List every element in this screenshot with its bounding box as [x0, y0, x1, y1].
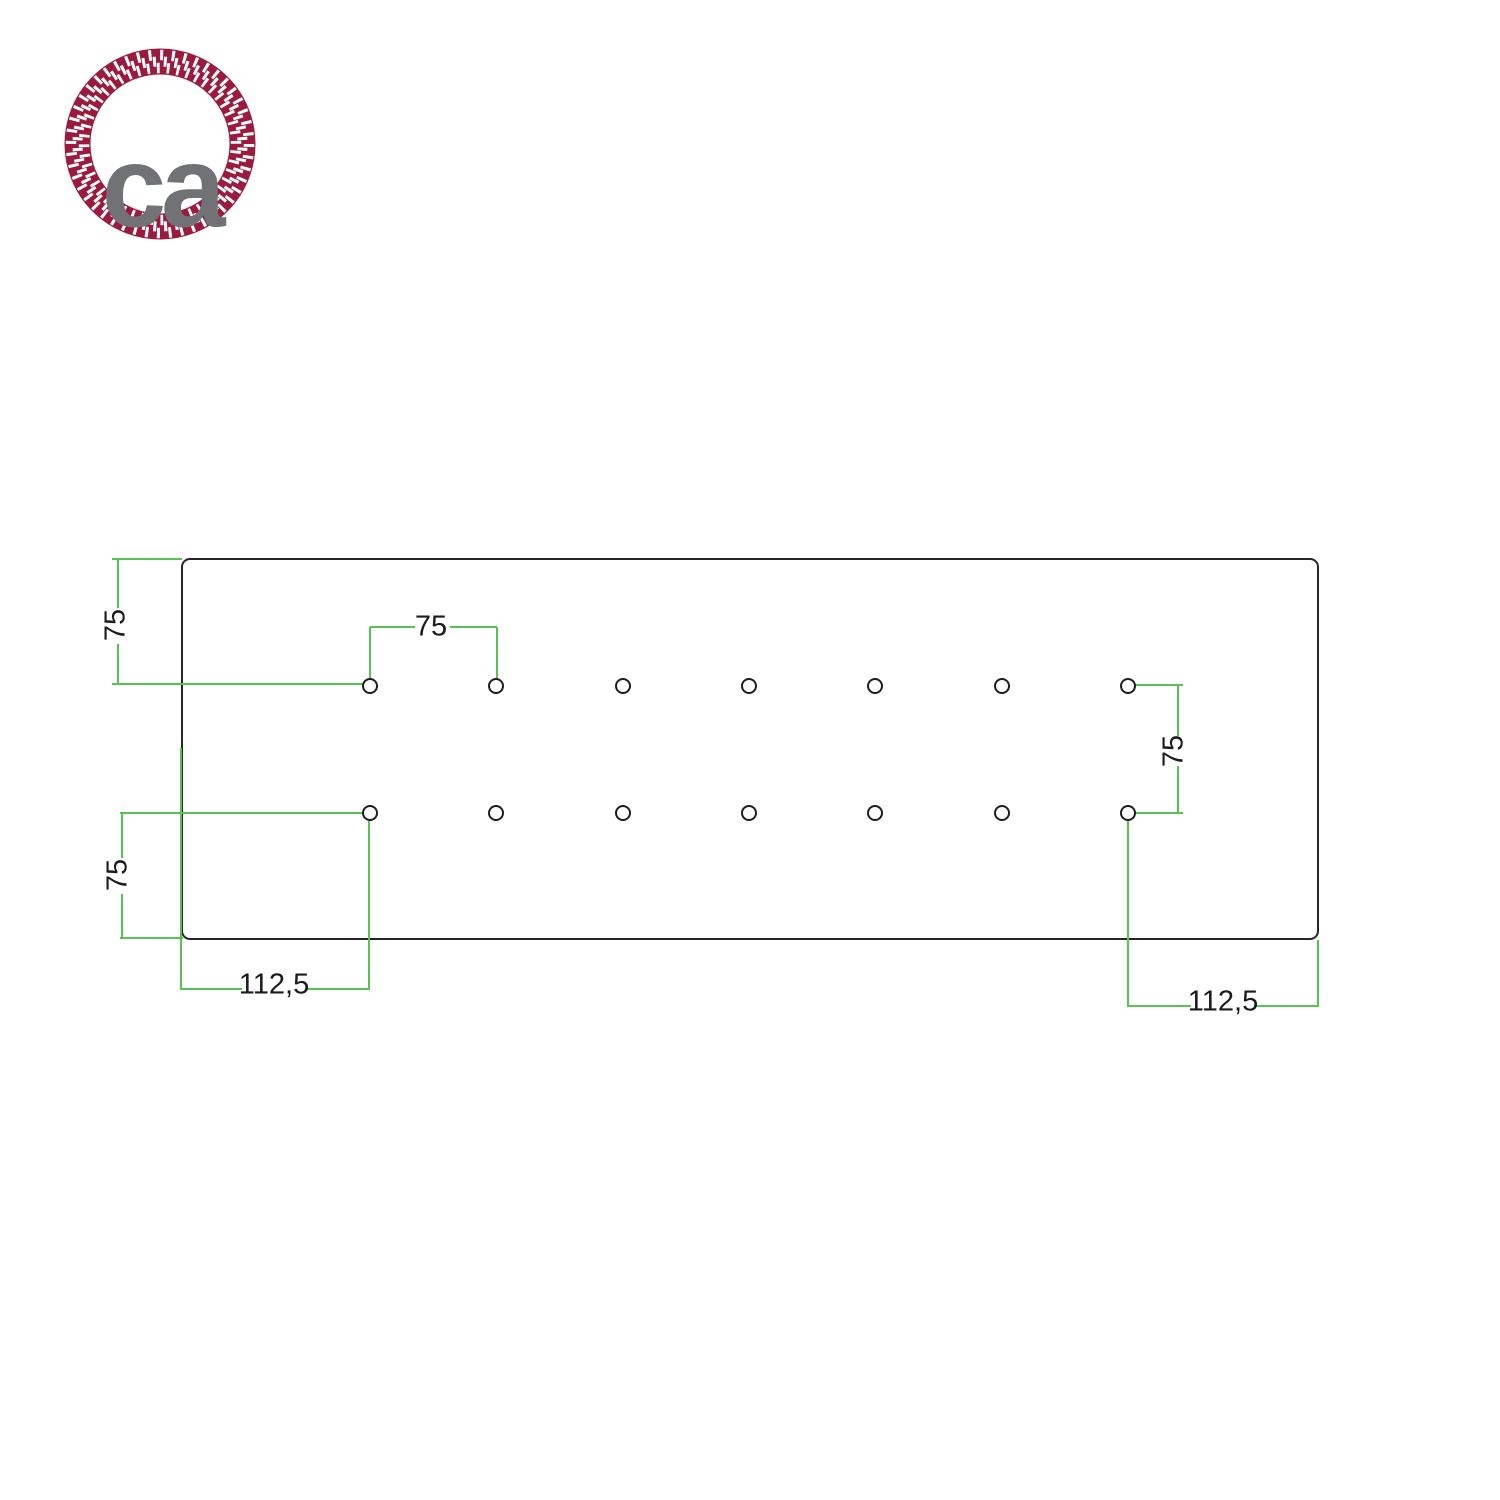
- dimension-line: [121, 894, 123, 939]
- dim-label-hole-spacing-75: 75: [415, 613, 447, 642]
- extension-line: [120, 812, 370, 814]
- mounting-hole: [741, 805, 757, 821]
- mounting-hole: [362, 805, 378, 821]
- dim-label-top-left-75: 75: [102, 609, 131, 641]
- plate-outline: [181, 558, 1319, 940]
- dim-label-bottom-left-75: 75: [104, 859, 133, 891]
- dim-label-offset-left-112-5: 112,5: [239, 971, 309, 1000]
- extension-line: [120, 937, 183, 939]
- mounting-hole: [994, 805, 1010, 821]
- extension-line: [1317, 940, 1319, 1007]
- dimension-line: [121, 813, 123, 858]
- extension-line: [368, 815, 370, 990]
- mounting-hole: [362, 678, 378, 694]
- dimension-line: [117, 559, 119, 608]
- dimension-line: [1256, 1005, 1319, 1007]
- mounting-hole: [488, 678, 504, 694]
- dimension-line: [117, 644, 119, 685]
- mounting-hole: [994, 678, 1010, 694]
- mounting-hole: [867, 678, 883, 694]
- mounting-hole: [615, 678, 631, 694]
- mounting-hole: [867, 805, 883, 821]
- dimension-line: [1177, 766, 1179, 814]
- dimension-line: [370, 626, 415, 628]
- extension-line: [112, 683, 370, 685]
- extension-line: [1127, 815, 1129, 1007]
- mounting-hole: [488, 805, 504, 821]
- extension-line: [112, 558, 182, 560]
- mounting-hole: [1120, 805, 1136, 821]
- extension-line: [369, 627, 371, 680]
- product-technical-drawing-page: ca 75 75 75 75 112,5 112,5: [0, 0, 1500, 1500]
- creative-cables-logo: ca: [60, 44, 260, 244]
- extension-line: [1134, 684, 1183, 686]
- mounting-hole: [1120, 678, 1136, 694]
- extension-line: [496, 627, 498, 680]
- mounting-hole: [615, 805, 631, 821]
- dimension-line: [1177, 685, 1179, 736]
- logo-text: ca: [102, 128, 221, 244]
- mounting-hole: [741, 678, 757, 694]
- dim-label-offset-right-112-5: 112,5: [1188, 988, 1258, 1017]
- dimension-line: [450, 626, 497, 628]
- dimension-line: [1128, 1005, 1191, 1007]
- dim-label-right-75: 75: [1160, 735, 1189, 767]
- dimension-line: [181, 988, 242, 990]
- extension-line: [180, 748, 182, 990]
- dimension-line: [306, 988, 370, 990]
- extension-line: [1134, 812, 1183, 814]
